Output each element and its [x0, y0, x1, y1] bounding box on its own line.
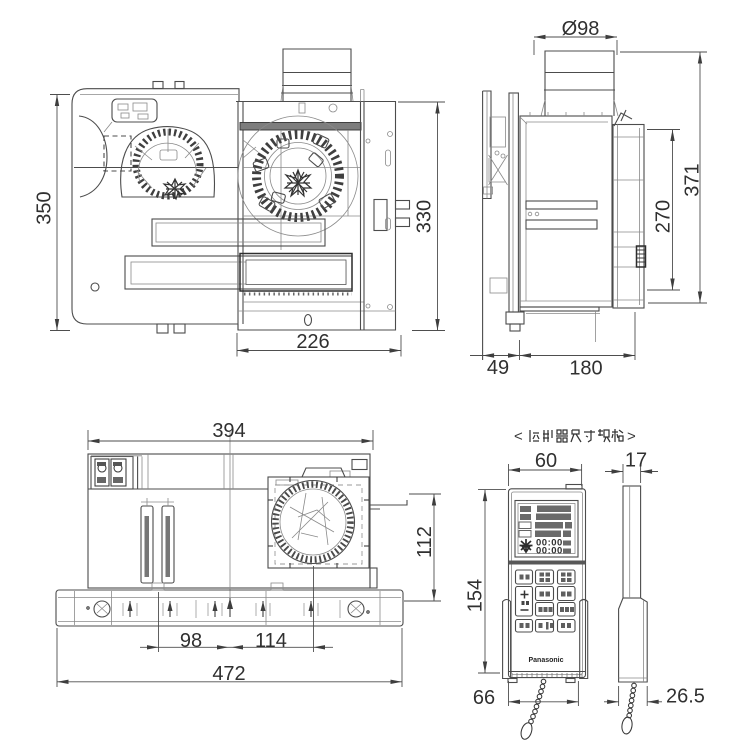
svg-text:371: 371 — [681, 163, 703, 196]
svg-text:98: 98 — [180, 630, 202, 652]
svg-text:17: 17 — [625, 450, 647, 472]
svg-text:26.5: 26.5 — [666, 686, 705, 708]
svg-text:350: 350 — [33, 191, 55, 224]
svg-text:<: < — [514, 428, 523, 445]
svg-text:60: 60 — [535, 450, 557, 472]
svg-text:49: 49 — [487, 357, 509, 379]
svg-text:270: 270 — [652, 200, 674, 233]
svg-text:154: 154 — [464, 579, 486, 612]
svg-text:Panasonic: Panasonic — [528, 657, 563, 664]
svg-text:330: 330 — [413, 200, 435, 233]
svg-text:Ø98: Ø98 — [562, 18, 600, 40]
svg-text:112: 112 — [414, 526, 436, 558]
svg-text:00:00: 00:00 — [536, 546, 563, 557]
svg-text:394: 394 — [212, 420, 245, 442]
svg-text:>: > — [627, 428, 636, 445]
svg-text:114: 114 — [255, 630, 287, 652]
svg-text:226: 226 — [296, 331, 329, 353]
svg-text:180: 180 — [569, 358, 602, 380]
svg-text:472: 472 — [212, 663, 245, 685]
svg-text:66: 66 — [473, 687, 495, 709]
